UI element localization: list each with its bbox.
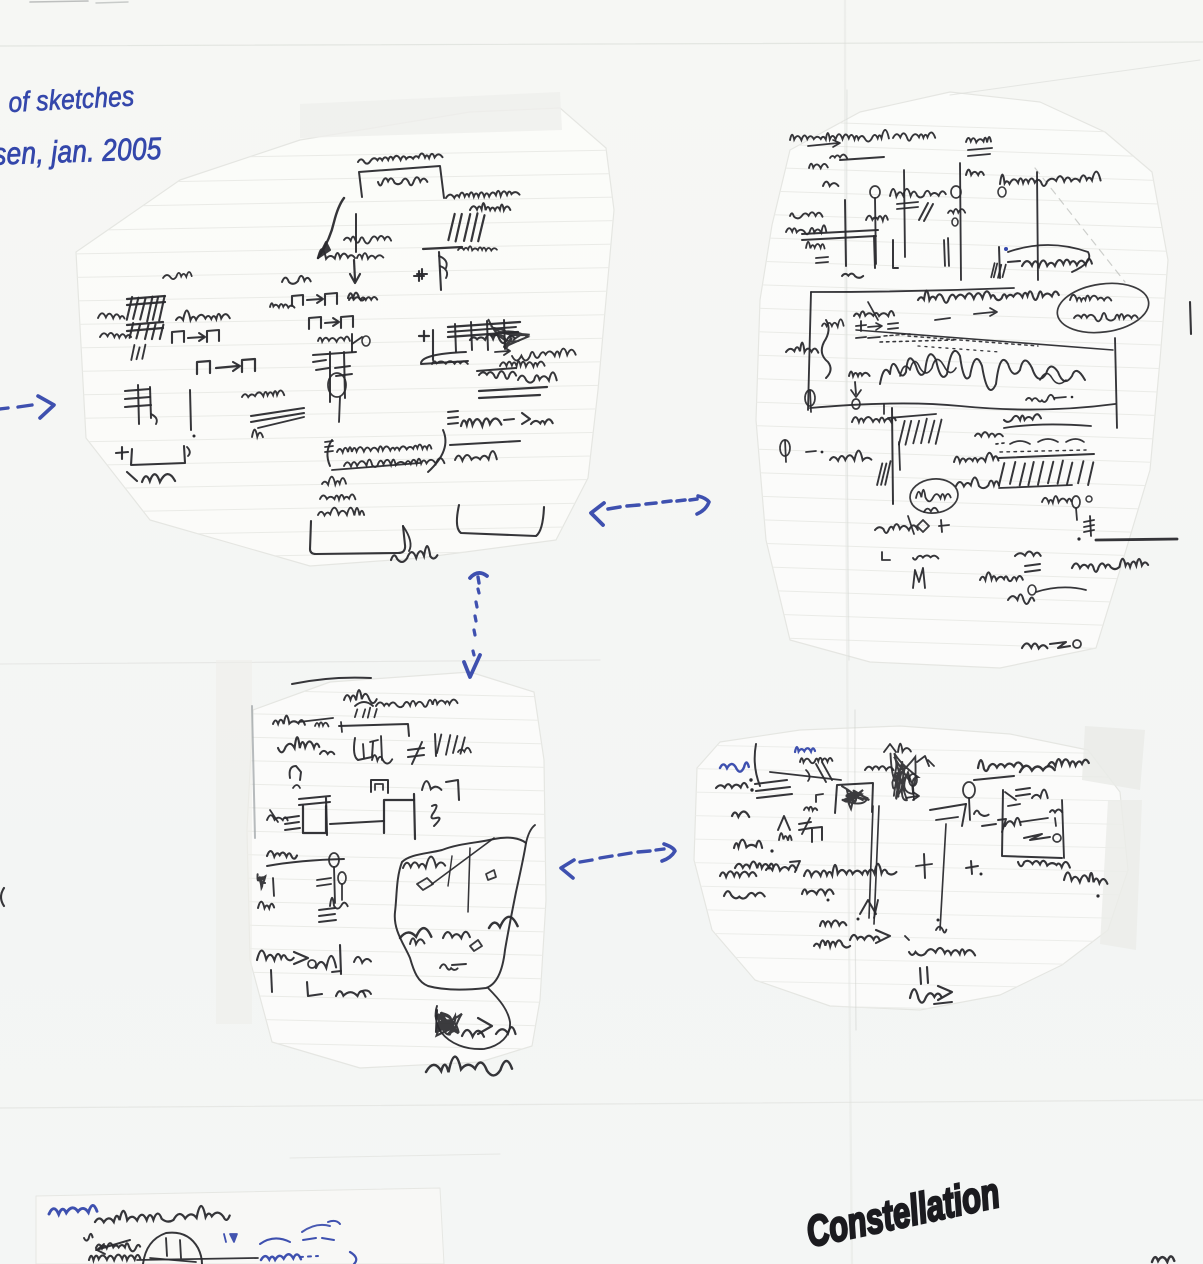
svg-text:of sketches: of sketches: [8, 80, 135, 118]
svg-text:tsen, jan. 2005: tsen, jan. 2005: [0, 131, 163, 172]
